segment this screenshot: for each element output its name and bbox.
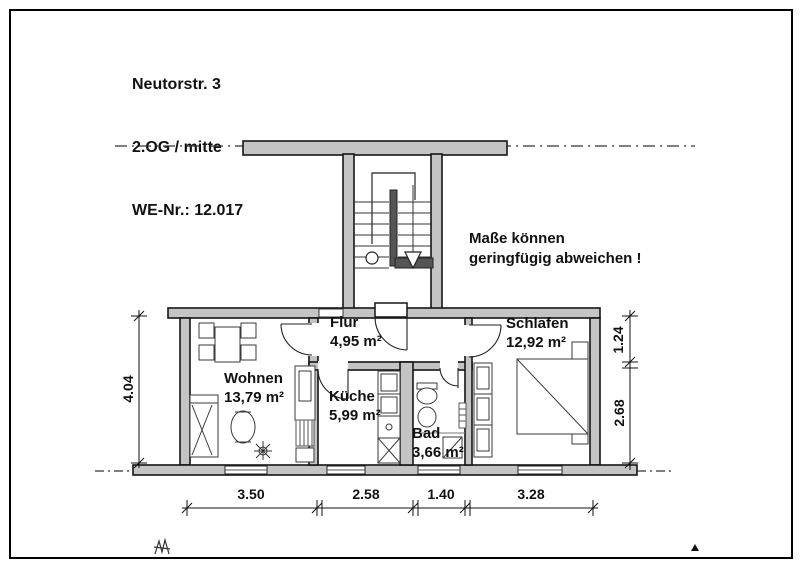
stair-newel-post (366, 252, 378, 264)
monogram-mark (154, 540, 170, 554)
plant (254, 441, 272, 460)
nightstand (572, 342, 588, 359)
room-label-kueche: Küche 5,99 m² (329, 387, 381, 425)
furniture-schlafen (474, 342, 588, 457)
wohnen-door-gap (308, 323, 319, 356)
corner-mark (691, 544, 699, 551)
dimension-label-4-04: 4.04 (120, 367, 136, 411)
dining-chair (241, 323, 256, 338)
wohnen-door (281, 324, 312, 355)
dimension-label-1-24: 1.24 (610, 318, 626, 362)
stair-stringer (390, 190, 397, 266)
staircase (354, 173, 433, 268)
nightstand (572, 434, 588, 444)
radiator (296, 420, 314, 446)
dining-chair (199, 323, 214, 338)
dimension-label-2-58: 2.58 (342, 486, 390, 502)
schlafen-door (469, 325, 501, 357)
room-label-wohnen: Wohnen 13,79 m² (224, 369, 284, 407)
dining-chair (241, 345, 256, 360)
top-exterior-wall (243, 141, 507, 155)
room-label-schlafen: Schlafen 12,92 m² (506, 314, 569, 352)
right-exterior-wall (590, 318, 600, 465)
left-exterior-wall (180, 318, 190, 465)
floor-plan-svg (0, 0, 800, 566)
dimension-label-3-28: 3.28 (507, 486, 555, 502)
dining-table (215, 327, 240, 362)
wc-toilet (417, 388, 437, 404)
stairwell-left-wall (343, 154, 354, 310)
stairwell-right-wall (431, 154, 442, 310)
armchair (231, 411, 255, 443)
schlafen-door-gap (464, 325, 473, 356)
dimension-label-2-68: 2.68 (611, 391, 627, 435)
room-label-bad: Bad 3,66 m² (412, 424, 464, 462)
kueche-door-gap (318, 361, 348, 371)
corner-marks (154, 540, 699, 554)
dining-chair (199, 345, 214, 360)
furniture-kueche (378, 371, 400, 463)
room-label-flur: Flur 4,95 m² (330, 313, 382, 351)
floor-plan-page: Neutorstr. 3 2.OG / mitte WE-Nr.: 12.017… (0, 0, 800, 566)
dimension-label-3-50: 3.50 (227, 486, 275, 502)
bad-door-gap (440, 361, 458, 371)
dimension-label-1-40: 1.40 (417, 486, 465, 502)
